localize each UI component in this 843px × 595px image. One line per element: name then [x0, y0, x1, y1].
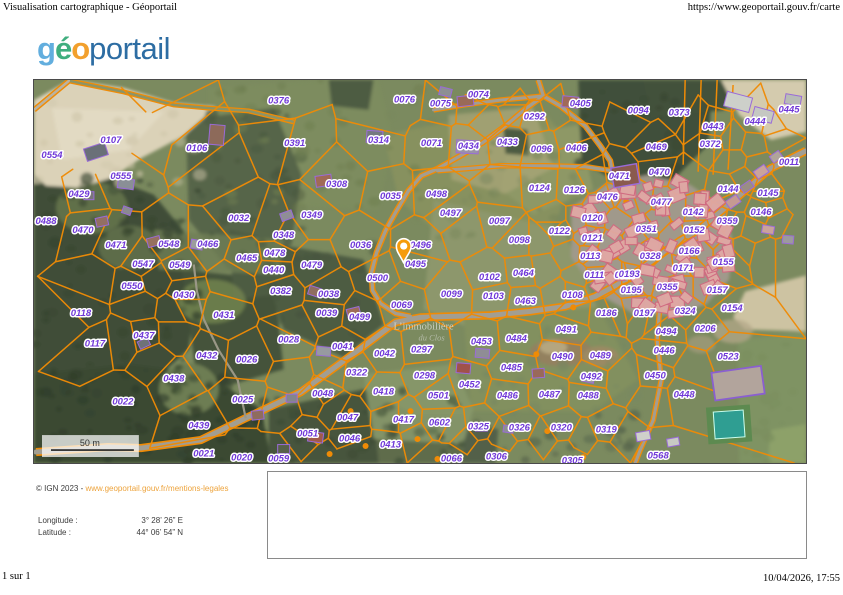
svg-text:du Clos: du Clos: [419, 332, 446, 342]
svg-text:0197: 0197: [634, 308, 656, 319]
svg-text:0491: 0491: [556, 325, 577, 336]
svg-text:0171: 0171: [673, 263, 694, 274]
svg-text:0443: 0443: [703, 121, 725, 132]
svg-text:0476: 0476: [597, 192, 619, 203]
svg-text:0117: 0117: [85, 339, 106, 350]
svg-text:0038: 0038: [318, 289, 340, 300]
svg-text:0486: 0486: [497, 391, 519, 402]
svg-text:0075: 0075: [430, 98, 452, 109]
svg-text:0059: 0059: [268, 453, 290, 463]
svg-text:0157: 0157: [707, 285, 729, 296]
svg-text:0028: 0028: [278, 335, 300, 346]
svg-text:0470: 0470: [649, 167, 671, 178]
svg-text:0489: 0489: [590, 351, 612, 362]
svg-text:0071: 0071: [421, 138, 442, 149]
svg-text:0479: 0479: [301, 260, 323, 271]
svg-text:0126: 0126: [564, 185, 586, 196]
svg-text:0096: 0096: [531, 144, 553, 155]
svg-text:0487: 0487: [539, 390, 561, 401]
svg-text:0484: 0484: [506, 334, 528, 345]
svg-text:0432: 0432: [196, 351, 218, 362]
svg-text:0466: 0466: [197, 239, 219, 250]
svg-text:50 m: 50 m: [80, 438, 100, 448]
svg-text:0195: 0195: [621, 285, 643, 296]
svg-text:0500: 0500: [367, 273, 389, 284]
svg-text:0405: 0405: [570, 98, 592, 109]
svg-text:0477: 0477: [651, 197, 673, 208]
svg-text:0026: 0026: [236, 355, 258, 366]
svg-text:0439: 0439: [188, 420, 210, 431]
svg-text:0142: 0142: [683, 207, 705, 218]
svg-text:0306: 0306: [486, 451, 508, 462]
svg-text:0488: 0488: [578, 391, 600, 402]
svg-text:0048: 0048: [312, 389, 334, 400]
svg-text:0298: 0298: [414, 371, 436, 382]
svg-text:0152: 0152: [684, 225, 706, 236]
svg-text:0548: 0548: [158, 239, 180, 250]
svg-text:0032: 0032: [228, 213, 250, 224]
svg-text:0470: 0470: [72, 225, 94, 236]
svg-text:0359: 0359: [717, 216, 739, 227]
svg-text:0437: 0437: [133, 331, 155, 342]
svg-text:0499: 0499: [349, 312, 371, 323]
svg-text:0497: 0497: [440, 208, 462, 219]
svg-text:0444: 0444: [745, 116, 767, 127]
svg-text:0047: 0047: [337, 413, 359, 424]
svg-text:0097: 0097: [489, 216, 511, 227]
svg-text:0146: 0146: [751, 207, 773, 218]
svg-text:0523: 0523: [718, 352, 740, 363]
svg-text:0042: 0042: [374, 349, 396, 360]
svg-text:0602: 0602: [429, 418, 451, 429]
svg-text:0076: 0076: [394, 94, 416, 105]
svg-text:0326: 0326: [509, 422, 531, 433]
svg-text:0314: 0314: [368, 135, 390, 146]
svg-text:0446: 0446: [654, 346, 676, 357]
svg-text:0568: 0568: [648, 450, 670, 461]
svg-text:0429: 0429: [68, 189, 90, 200]
svg-text:0206: 0206: [695, 324, 717, 335]
svg-text:0417: 0417: [393, 415, 415, 426]
svg-text:0046: 0046: [339, 433, 361, 444]
svg-text:0478: 0478: [264, 248, 286, 259]
svg-text:0550: 0550: [121, 281, 143, 292]
svg-text:0154: 0154: [722, 303, 744, 314]
svg-text:0021: 0021: [193, 448, 214, 459]
svg-text:0464: 0464: [513, 268, 535, 279]
svg-text:0325: 0325: [468, 421, 490, 432]
svg-text:0066: 0066: [441, 453, 463, 463]
svg-text:0166: 0166: [679, 246, 701, 257]
svg-text:0501: 0501: [428, 391, 449, 402]
svg-text:0022: 0022: [112, 397, 134, 408]
svg-text:0108: 0108: [562, 290, 584, 301]
svg-text:0297: 0297: [411, 345, 433, 356]
svg-text:0292: 0292: [524, 111, 546, 122]
svg-text:0106: 0106: [186, 143, 208, 154]
svg-text:0555: 0555: [110, 171, 132, 182]
svg-text:0144: 0144: [718, 184, 740, 195]
svg-text:0495: 0495: [405, 259, 427, 270]
svg-text:0124: 0124: [529, 183, 551, 194]
svg-text:0488: 0488: [35, 216, 57, 227]
svg-text:0025: 0025: [232, 395, 254, 406]
svg-text:0103: 0103: [483, 291, 505, 302]
svg-text:0011: 0011: [779, 157, 799, 168]
svg-text:0453: 0453: [471, 337, 493, 348]
svg-text:0328: 0328: [640, 251, 662, 262]
svg-text:0120: 0120: [582, 213, 604, 224]
svg-text:0111: 0111: [584, 270, 604, 281]
svg-text:0376: 0376: [268, 95, 290, 106]
svg-text:0450: 0450: [645, 371, 667, 382]
svg-text:0308: 0308: [326, 179, 348, 190]
svg-text:0074: 0074: [468, 89, 490, 100]
svg-text:0471: 0471: [609, 171, 630, 182]
svg-text:0469: 0469: [646, 142, 668, 153]
svg-text:0020: 0020: [231, 452, 253, 463]
svg-text:0102: 0102: [479, 272, 501, 283]
svg-text:0036: 0036: [350, 240, 372, 251]
svg-text:0498: 0498: [426, 189, 448, 200]
svg-text:0433: 0433: [497, 137, 519, 148]
svg-text:0382: 0382: [270, 286, 292, 297]
svg-text:0431: 0431: [213, 310, 234, 321]
svg-text:0440: 0440: [263, 265, 285, 276]
svg-text:0492: 0492: [581, 372, 603, 383]
svg-text:0494: 0494: [656, 327, 678, 338]
svg-text:0351: 0351: [636, 224, 657, 235]
svg-text:0322: 0322: [346, 368, 368, 379]
svg-text:0549: 0549: [169, 260, 191, 271]
svg-text:0348: 0348: [273, 230, 295, 241]
svg-text:0471: 0471: [105, 240, 126, 251]
svg-text:0438: 0438: [163, 374, 185, 385]
svg-text:0039: 0039: [316, 308, 338, 319]
svg-text:0465: 0465: [236, 253, 258, 264]
svg-text:0554: 0554: [41, 150, 63, 161]
svg-text:0041: 0041: [332, 342, 353, 353]
svg-text:0434: 0434: [458, 141, 480, 152]
svg-text:0490: 0490: [552, 352, 574, 363]
svg-text:0305: 0305: [562, 455, 584, 463]
svg-text:0452: 0452: [459, 380, 481, 391]
svg-text:0155: 0155: [713, 257, 735, 268]
svg-text:0320: 0320: [551, 422, 573, 433]
svg-text:0547: 0547: [132, 259, 154, 270]
svg-text:0098: 0098: [509, 235, 531, 246]
svg-text:0406: 0406: [566, 143, 588, 154]
svg-text:0319: 0319: [596, 424, 618, 435]
svg-text:L’immobilière: L’immobilière: [394, 321, 454, 332]
svg-text:0145: 0145: [758, 188, 780, 199]
svg-text:0463: 0463: [515, 296, 537, 307]
svg-text:0193: 0193: [619, 269, 641, 280]
svg-text:0118: 0118: [71, 308, 92, 319]
svg-text:0121: 0121: [582, 233, 603, 244]
svg-text:0496: 0496: [410, 240, 432, 251]
svg-text:0324: 0324: [675, 306, 697, 317]
svg-text:0418: 0418: [373, 387, 395, 398]
svg-text:0373: 0373: [669, 107, 691, 118]
svg-text:0355: 0355: [657, 282, 679, 293]
svg-text:0051: 0051: [297, 428, 318, 439]
svg-text:0448: 0448: [674, 390, 696, 401]
svg-text:0122: 0122: [549, 226, 571, 237]
svg-text:0430: 0430: [173, 290, 195, 301]
svg-text:0069: 0069: [391, 300, 413, 311]
svg-text:0413: 0413: [380, 439, 402, 450]
svg-text:0485: 0485: [501, 363, 523, 374]
svg-text:0186: 0186: [596, 308, 618, 319]
svg-text:0107: 0107: [100, 135, 122, 146]
svg-text:0445: 0445: [778, 104, 800, 115]
svg-text:0099: 0099: [441, 289, 463, 300]
svg-text:0372: 0372: [700, 139, 722, 150]
svg-text:0349: 0349: [301, 210, 323, 221]
svg-text:0391: 0391: [284, 138, 305, 149]
svg-text:0113: 0113: [580, 251, 601, 262]
svg-text:0035: 0035: [380, 191, 402, 202]
svg-text:0094: 0094: [628, 105, 650, 116]
